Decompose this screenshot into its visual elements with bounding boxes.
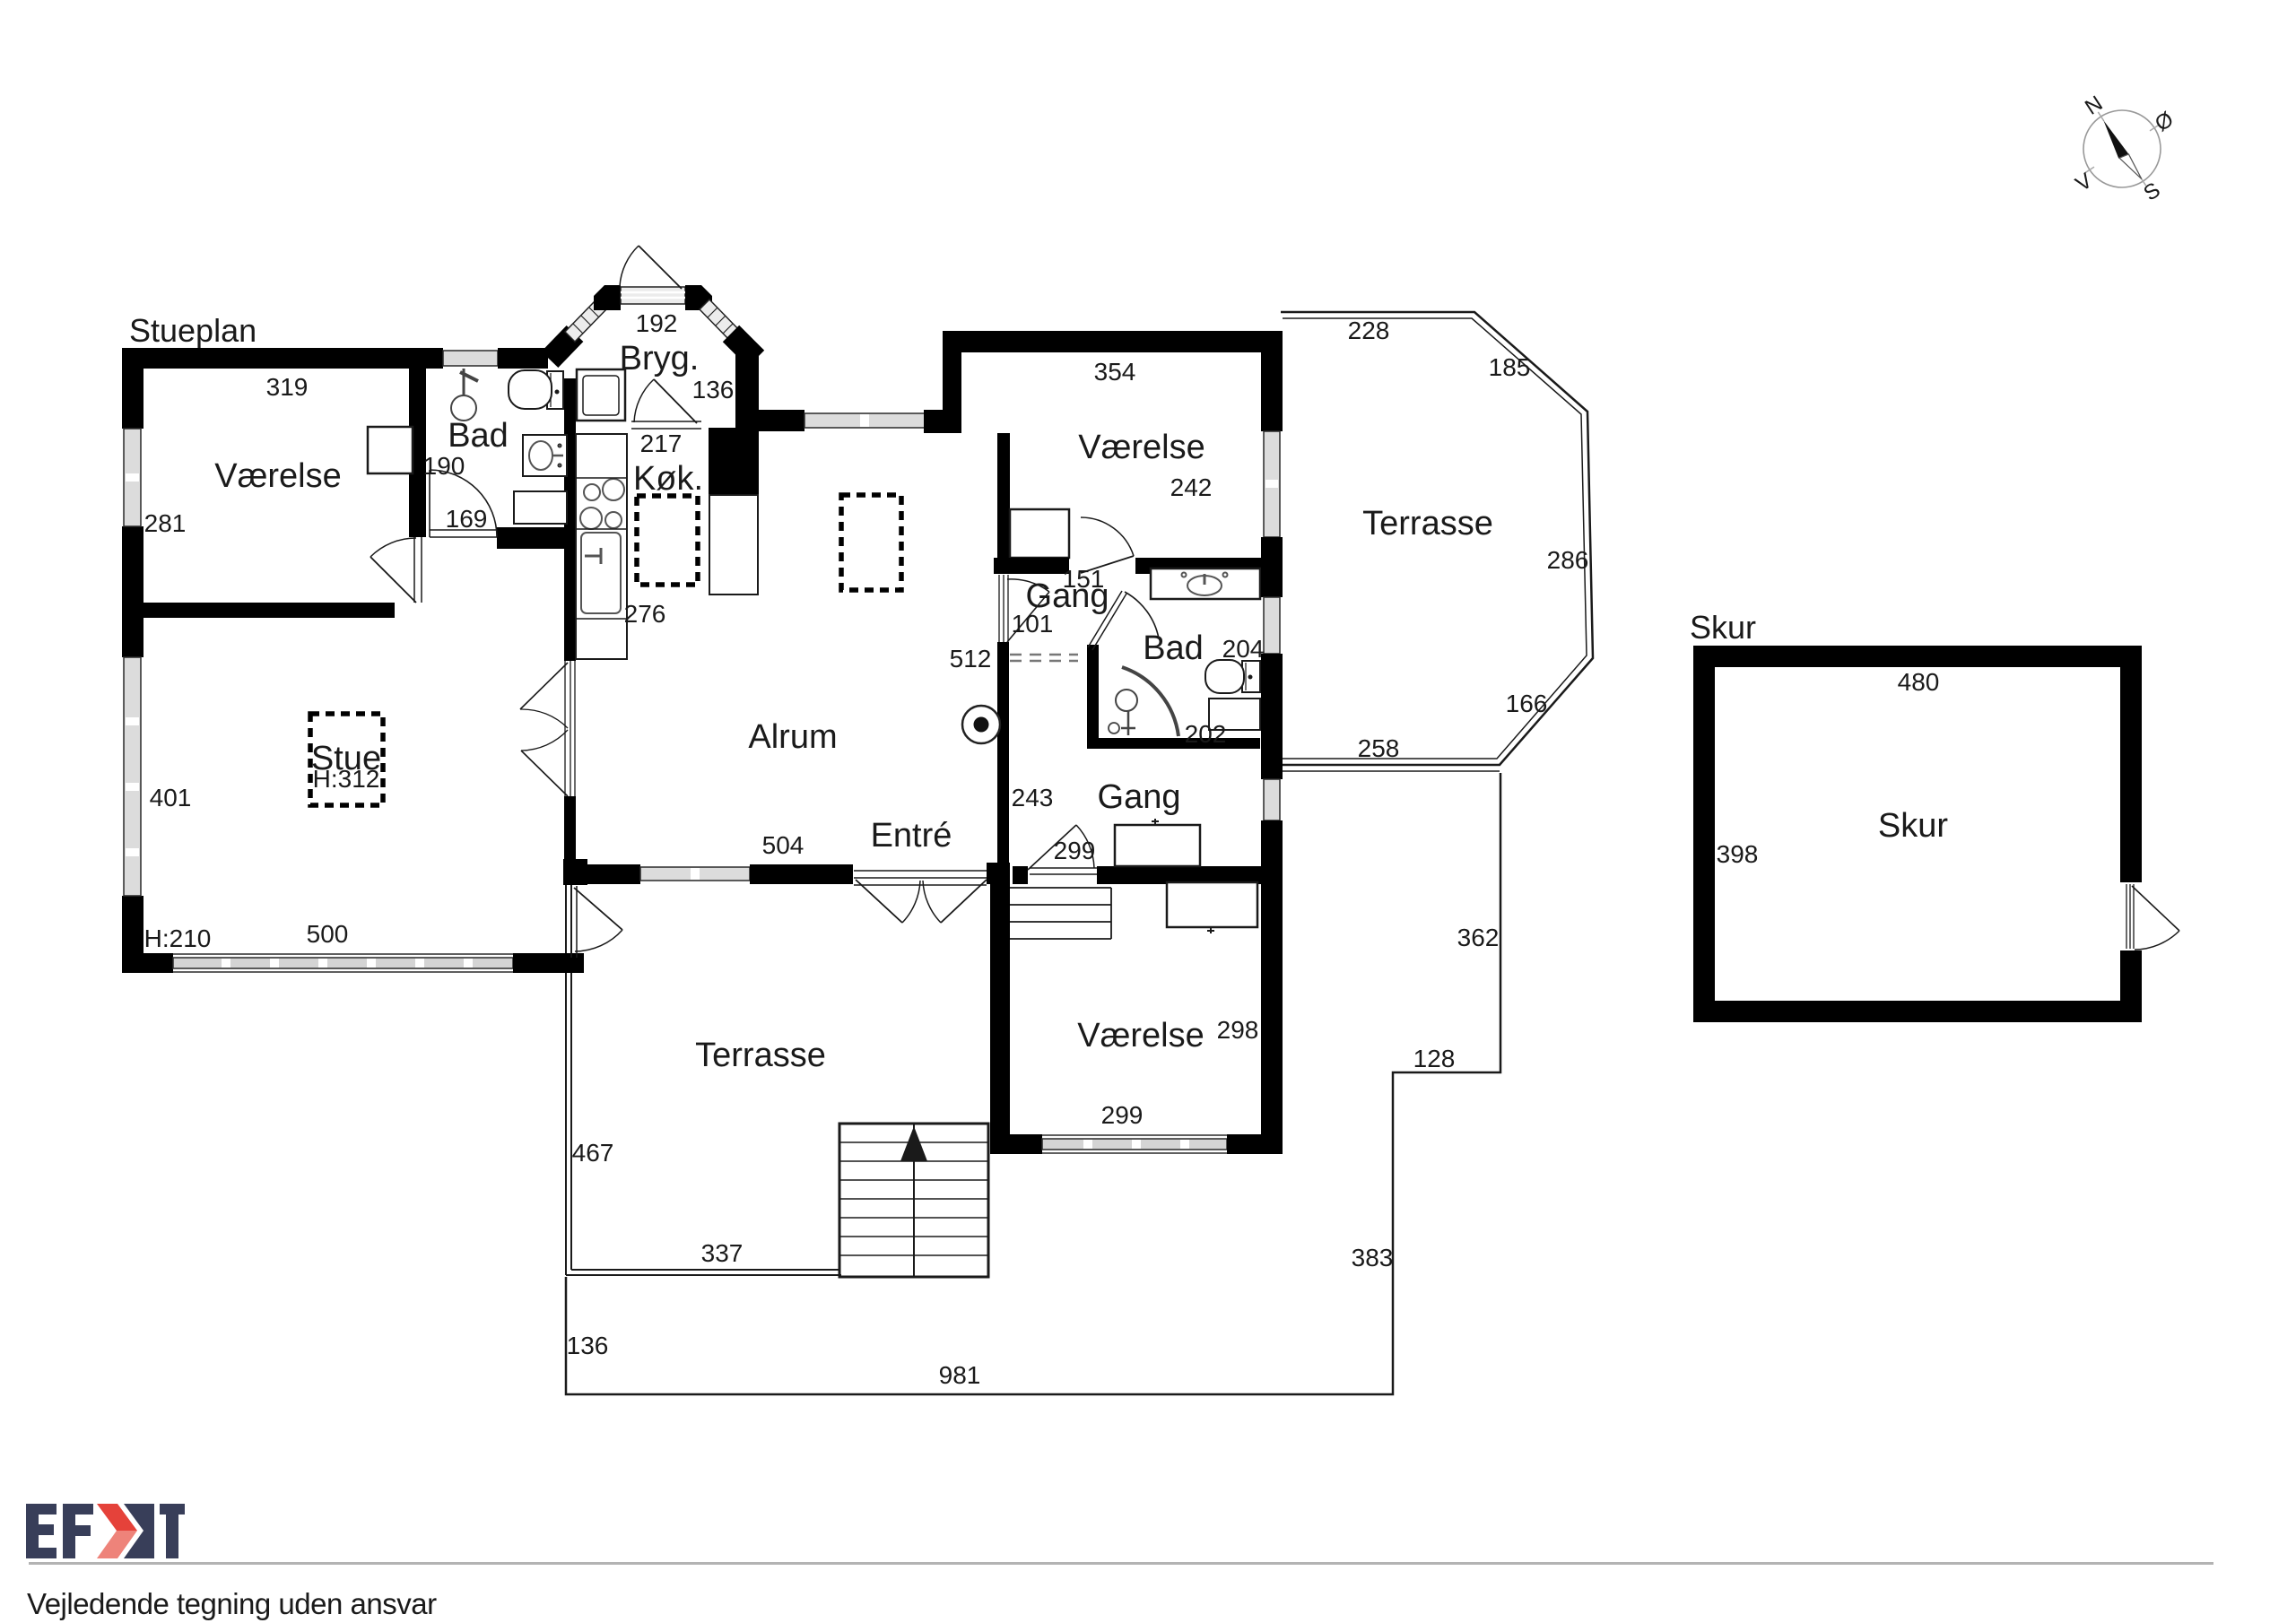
svg-text:Skur: Skur (1690, 609, 1756, 646)
svg-text:Køk.: Køk. (633, 460, 703, 498)
svg-text:362: 362 (1457, 924, 1500, 951)
svg-text:Bryg.: Bryg. (620, 340, 700, 378)
svg-text:Terrasse: Terrasse (1362, 505, 1493, 542)
svg-text:Værelse: Værelse (214, 457, 342, 495)
svg-text:185: 185 (1489, 353, 1531, 381)
svg-text:202: 202 (1185, 720, 1227, 748)
svg-text:217: 217 (640, 430, 683, 457)
svg-text:Terrasse: Terrasse (695, 1037, 826, 1074)
svg-text:Alrum: Alrum (748, 718, 837, 756)
svg-text:169: 169 (446, 505, 488, 533)
svg-text:319: 319 (266, 373, 309, 401)
svg-text:299: 299 (1054, 837, 1096, 864)
svg-text:258: 258 (1358, 734, 1400, 762)
svg-text:204: 204 (1222, 635, 1265, 663)
svg-text:128: 128 (1413, 1045, 1456, 1072)
svg-text:500: 500 (307, 920, 349, 948)
svg-text:504: 504 (762, 831, 804, 859)
svg-text:136: 136 (567, 1332, 609, 1359)
svg-text:398: 398 (1717, 840, 1759, 868)
svg-text:981: 981 (939, 1361, 981, 1389)
svg-text:281: 281 (144, 509, 187, 537)
svg-text:101: 101 (1012, 610, 1054, 638)
svg-text:276: 276 (624, 600, 666, 628)
svg-text:Bad: Bad (448, 417, 509, 455)
svg-text:512: 512 (950, 645, 992, 673)
svg-text:Stueplan: Stueplan (129, 312, 257, 349)
svg-text:354: 354 (1094, 358, 1136, 386)
svg-text:H:312: H:312 (313, 765, 380, 793)
svg-text:Værelse: Værelse (1078, 429, 1205, 466)
svg-text:136: 136 (692, 376, 735, 404)
svg-text:Værelse: Værelse (1077, 1017, 1205, 1055)
svg-text:Skur: Skur (1878, 807, 1948, 845)
svg-text:383: 383 (1352, 1244, 1394, 1271)
svg-text:401: 401 (150, 784, 192, 811)
svg-text:192: 192 (636, 309, 678, 337)
svg-text:243: 243 (1012, 784, 1054, 811)
svg-text:Entré: Entré (871, 817, 952, 855)
svg-text:480: 480 (1898, 668, 1940, 696)
svg-text:286: 286 (1547, 546, 1589, 574)
svg-text:467: 467 (572, 1139, 614, 1167)
svg-text:Gang: Gang (1098, 778, 1181, 816)
svg-text:H:210: H:210 (144, 924, 212, 952)
svg-text:299: 299 (1101, 1101, 1144, 1129)
svg-text:298: 298 (1217, 1016, 1259, 1044)
svg-text:190: 190 (423, 452, 465, 480)
svg-text:Bad: Bad (1143, 629, 1204, 667)
svg-text:337: 337 (701, 1239, 744, 1267)
svg-text:Vejledende tegning uden ansvar: Vejledende tegning uden ansvar (27, 1587, 437, 1620)
svg-text:228: 228 (1348, 317, 1390, 344)
svg-text:151: 151 (1063, 565, 1105, 593)
svg-text:166: 166 (1506, 690, 1548, 717)
svg-text:242: 242 (1170, 473, 1213, 501)
